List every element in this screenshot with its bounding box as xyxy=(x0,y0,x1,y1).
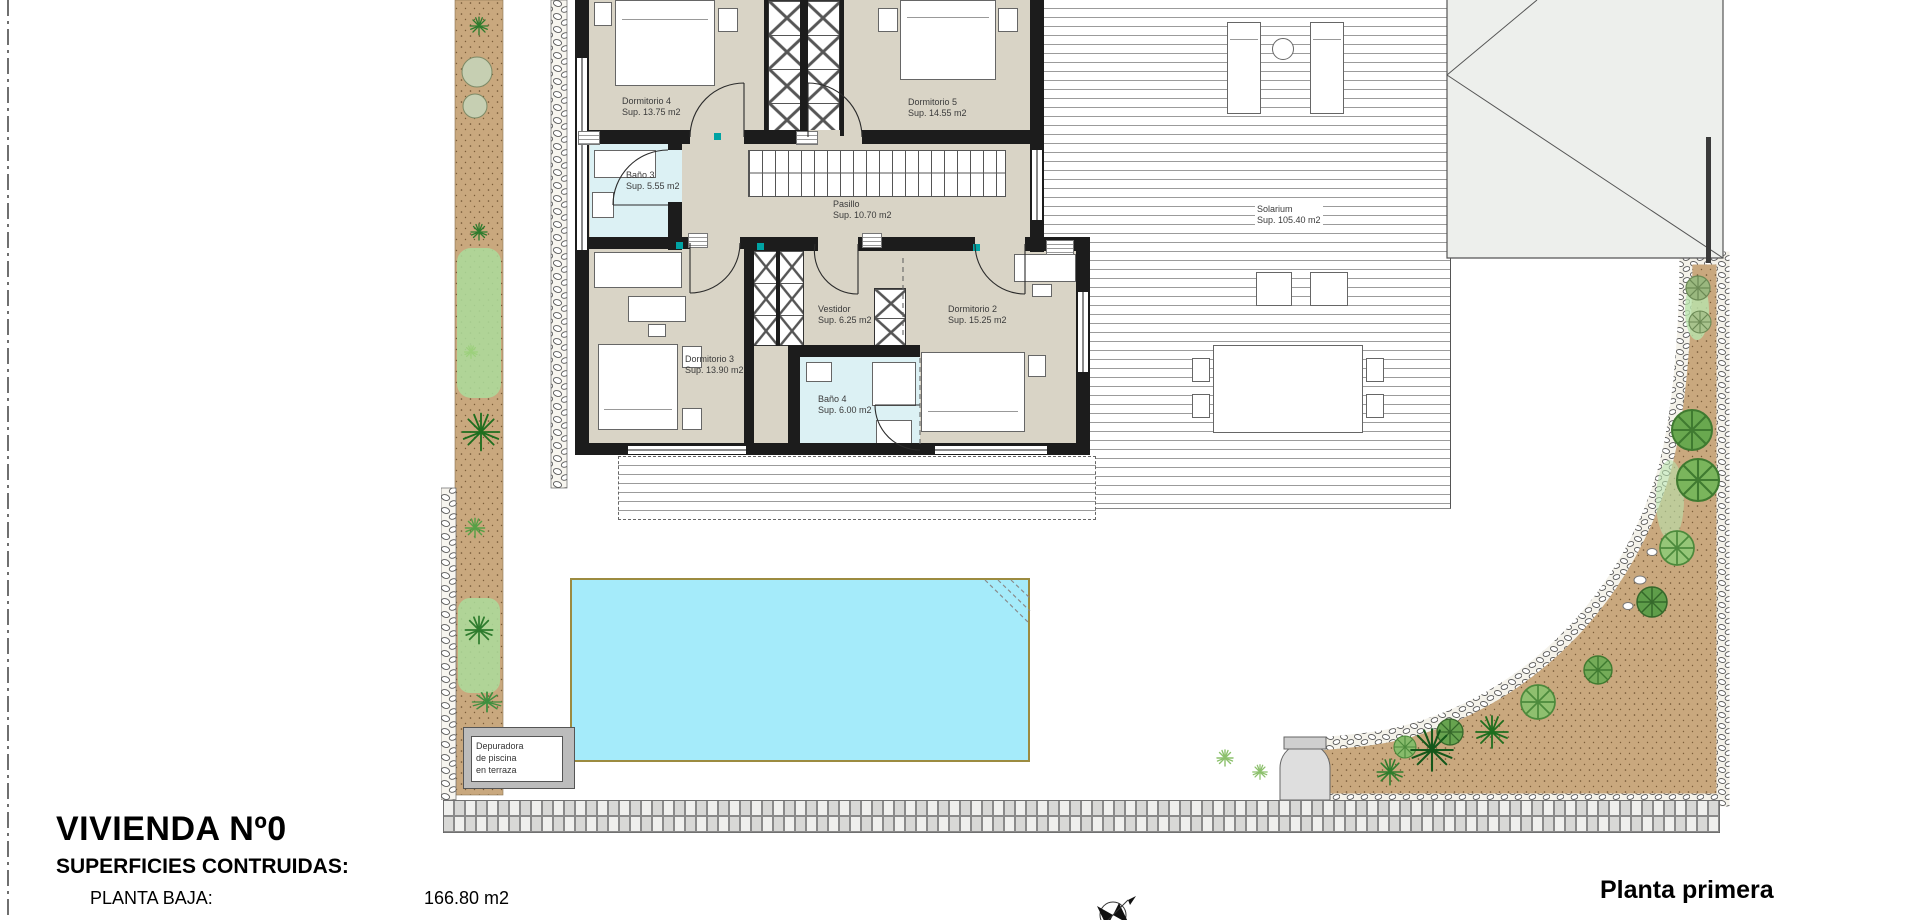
nightstand xyxy=(594,2,612,26)
surface-row-label: PLANTA BAJA: xyxy=(56,888,390,909)
room-name: Baño 3 xyxy=(626,170,680,181)
stool xyxy=(1032,284,1052,297)
interior-wall xyxy=(744,237,754,450)
pool-equipment-line: de piscina xyxy=(476,752,562,764)
dining-table xyxy=(1213,345,1363,433)
nightstand xyxy=(878,8,898,32)
interior-wall xyxy=(788,345,800,452)
room-area: Sup. 10.70 m2 xyxy=(833,210,892,221)
room-area: Sup. 105.40 m2 xyxy=(1257,215,1321,226)
nightstand xyxy=(718,8,738,32)
switch-marker xyxy=(757,243,764,250)
room-name: Baño 4 xyxy=(818,394,872,405)
palm-icon xyxy=(1377,759,1403,785)
room-label-dormitorio-4: Dormitorio 4 Sup. 13.75 m2 xyxy=(622,96,681,117)
dimension-stamp xyxy=(688,233,708,248)
project-title: VIVIENDA Nº0 xyxy=(56,810,576,849)
room-area: Sup. 6.25 m2 xyxy=(818,315,872,326)
staircase xyxy=(748,150,1006,197)
bed xyxy=(921,352,1025,432)
window xyxy=(1078,292,1088,372)
wardrobe-divider xyxy=(800,0,808,135)
pool-equipment-line: Depuradora xyxy=(476,740,562,752)
wardrobe xyxy=(874,288,906,346)
room-area: Sup. 6.00 m2 xyxy=(818,405,872,416)
room-name: Vestidor xyxy=(818,304,872,315)
switch-marker xyxy=(676,242,683,249)
terrace-deck xyxy=(618,456,1096,520)
room-area: Sup. 5.55 m2 xyxy=(626,181,680,192)
room-name: Dormitorio 2 xyxy=(948,304,1007,315)
room-label-bano-3: Baño 3 Sup. 5.55 m2 xyxy=(626,170,680,191)
room-label-dormitorio-5: Dormitorio 5 Sup. 14.55 m2 xyxy=(908,97,967,118)
grass-patch xyxy=(457,248,501,398)
surfaces-heading: SUPERFICIES CONTRUIDAS: xyxy=(56,855,576,879)
room-name: Solarium xyxy=(1257,204,1321,215)
title-block: VIVIENDA Nº0 SUPERFICIES CONTRUIDAS: PLA… xyxy=(56,810,576,909)
stool xyxy=(648,324,666,337)
table xyxy=(1256,272,1292,306)
palm-icon xyxy=(470,17,488,35)
paving-band xyxy=(443,800,1720,833)
room-name: Dormitorio 4 xyxy=(622,96,681,107)
dimension-stamp xyxy=(862,233,882,248)
plant-icon xyxy=(1253,765,1267,779)
surface-row-value: 166.80 m2 xyxy=(390,888,509,909)
switch-marker xyxy=(973,244,980,251)
palm-icon xyxy=(465,616,492,643)
nightstand xyxy=(682,408,702,430)
side-table xyxy=(1272,38,1294,60)
dimension-stamp xyxy=(1046,240,1074,255)
dresser xyxy=(628,296,686,322)
table xyxy=(1310,272,1348,306)
stone-wall xyxy=(551,0,567,488)
wardrobe-divider xyxy=(776,250,780,346)
door-opening xyxy=(975,237,1025,251)
room-area: Sup. 14.55 m2 xyxy=(908,108,967,119)
chair xyxy=(1192,358,1210,382)
switch-marker xyxy=(714,133,721,140)
wardrobe-dresser xyxy=(594,252,682,288)
floor-plan-sheet: Dormitorio 4 Sup. 13.75 m2 Dormitorio 5 … xyxy=(0,0,1920,920)
tree-icon xyxy=(1672,410,1712,450)
room-name: Pasillo xyxy=(833,199,892,210)
plant-icon xyxy=(465,346,478,359)
palm-icon xyxy=(1411,729,1453,771)
surface-row: PLANTA BAJA: 166.80 m2 xyxy=(56,888,576,909)
tree-icon xyxy=(1394,736,1416,758)
chair xyxy=(1366,358,1384,382)
closet-side-wall xyxy=(764,0,768,136)
room-label-dormitorio-2: Dormitorio 2 Sup. 15.25 m2 xyxy=(948,304,1007,325)
palm-icon xyxy=(463,414,500,451)
tree-icon xyxy=(1677,459,1719,501)
north-arrow-icon xyxy=(1097,896,1136,920)
stone-wall xyxy=(441,488,456,800)
sink xyxy=(876,420,912,444)
grass-patch xyxy=(458,598,500,693)
tree-icon xyxy=(1686,276,1710,300)
room-label-vestidor: Vestidor Sup. 6.25 m2 xyxy=(818,304,872,325)
room-name: Dormitorio 3 xyxy=(685,354,744,365)
shower xyxy=(872,362,916,406)
chair xyxy=(1366,394,1384,418)
window xyxy=(577,58,587,250)
pool-equipment-box: Depuradora de piscina en terraza xyxy=(463,727,575,789)
tree-icon xyxy=(1689,311,1711,333)
window xyxy=(1032,150,1042,220)
closet-side-wall xyxy=(840,0,844,136)
plant-icon xyxy=(1217,750,1233,766)
bed xyxy=(615,0,715,86)
tree-icon xyxy=(1660,531,1694,565)
window xyxy=(628,446,746,454)
roof-plan xyxy=(1447,0,1723,263)
sun-lounger xyxy=(1227,22,1261,114)
tree-icon xyxy=(1637,587,1667,617)
dimension-stamp xyxy=(578,131,600,145)
room-label-dormitorio-3: Dormitorio 3 Sup. 13.90 m2 xyxy=(685,354,744,375)
nightstand xyxy=(998,8,1018,32)
sun-lounger xyxy=(1310,22,1344,114)
palm-icon xyxy=(1476,716,1508,748)
room-area: Sup. 13.90 m2 xyxy=(685,365,744,376)
toilet xyxy=(806,362,832,382)
room-label-solarium: Solarium Sup. 105.40 m2 xyxy=(1255,204,1323,225)
swimming-pool xyxy=(570,578,1030,762)
room-label-pasillo: Pasillo Sup. 10.70 m2 xyxy=(833,199,892,220)
fern-icon xyxy=(473,692,502,712)
palm-icon xyxy=(471,224,487,240)
tree-icon xyxy=(1521,685,1555,719)
dimension-stamp xyxy=(796,131,818,145)
room-area: Sup. 15.25 m2 xyxy=(948,315,1007,326)
bed xyxy=(900,0,996,80)
roof-edge-beam xyxy=(1706,137,1711,263)
room-area: Sup. 13.75 m2 xyxy=(622,107,681,118)
window xyxy=(935,446,1047,454)
desk xyxy=(1014,254,1076,282)
plan-caption: Planta primera xyxy=(1600,876,1774,905)
pool-equipment-line: en terraza xyxy=(476,764,562,776)
nightstand xyxy=(1028,355,1046,377)
tree-icon xyxy=(1584,656,1612,684)
plant-icon xyxy=(465,518,484,537)
toilet xyxy=(592,192,614,218)
bed xyxy=(598,344,678,430)
left-garden xyxy=(441,0,571,800)
room-label-bano-4: Baño 4 Sup. 6.00 m2 xyxy=(818,394,872,415)
chair xyxy=(1192,394,1210,418)
room-name: Dormitorio 5 xyxy=(908,97,967,108)
pool-equipment-label: Depuradora de piscina en terraza xyxy=(471,736,563,782)
interior-wall xyxy=(788,345,920,357)
